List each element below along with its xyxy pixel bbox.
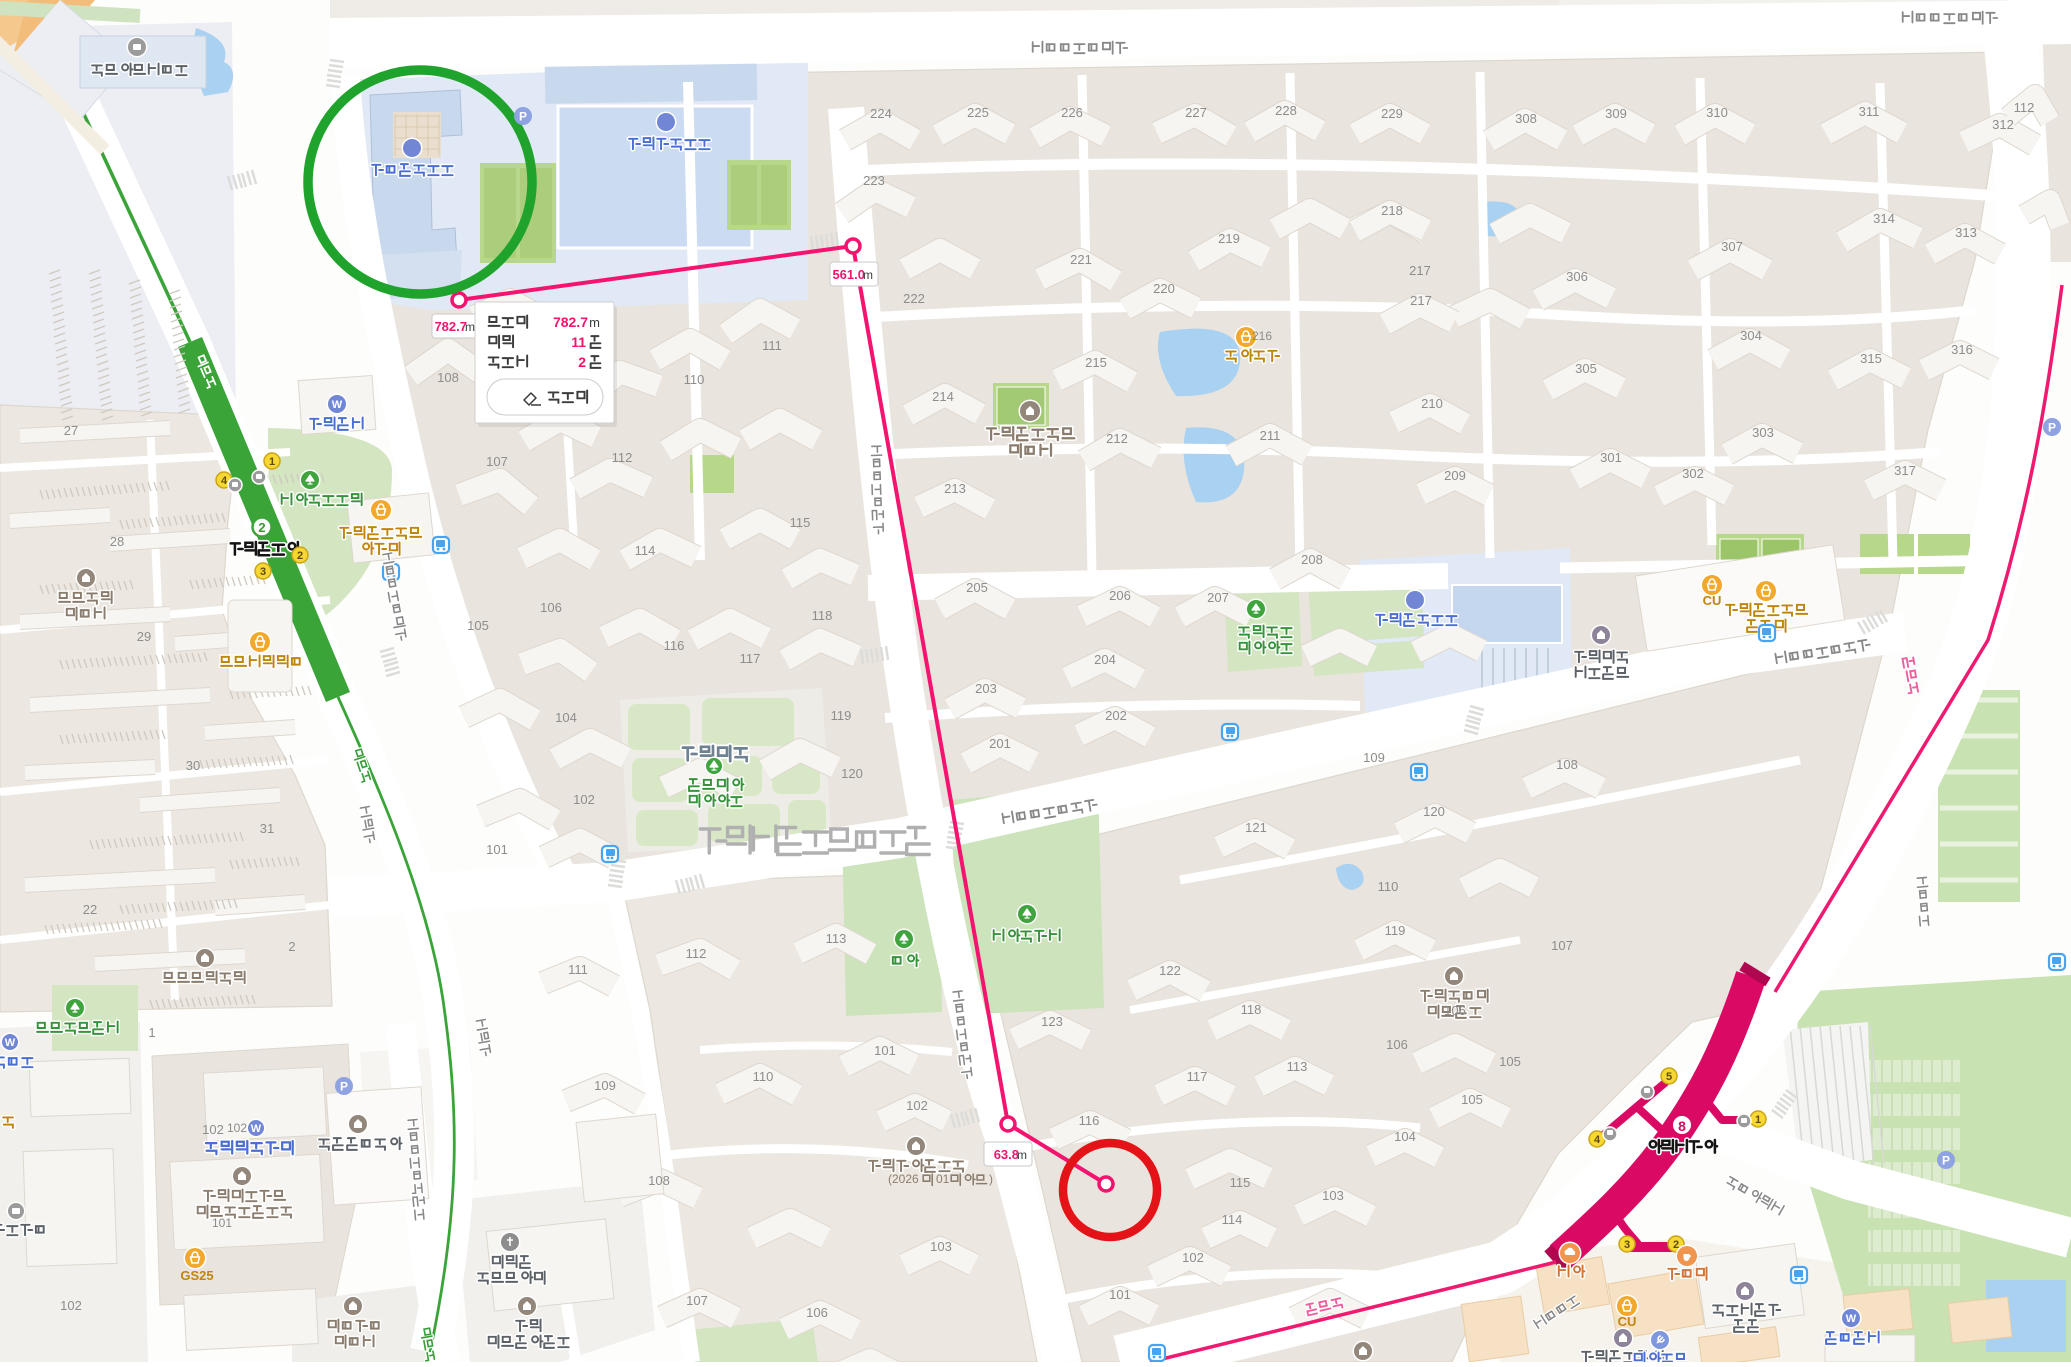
svg-text:106: 106: [1444, 1003, 1466, 1018]
svg-text:115: 115: [1230, 1175, 1251, 1190]
svg-text:): ): [989, 1172, 993, 1186]
svg-text:312: 312: [1992, 117, 2014, 132]
svg-text:27: 27: [64, 423, 78, 438]
svg-text:22: 22: [83, 902, 97, 917]
svg-text:2: 2: [288, 939, 295, 954]
svg-text:2: 2: [297, 550, 303, 562]
svg-text:303: 303: [1752, 425, 1774, 440]
svg-text:207: 207: [1207, 590, 1229, 605]
svg-text:30: 30: [186, 758, 200, 773]
svg-text:782.7: 782.7: [553, 314, 588, 330]
svg-text:m: m: [1017, 1148, 1027, 1162]
svg-text:101: 101: [1109, 1287, 1131, 1302]
svg-text:3: 3: [260, 566, 266, 578]
svg-text:(2026: (2026: [888, 1172, 919, 1186]
svg-text:314: 314: [1873, 211, 1895, 226]
svg-text:109: 109: [1363, 750, 1385, 765]
svg-text:105: 105: [467, 618, 489, 633]
svg-text:101: 101: [212, 1216, 232, 1230]
svg-text:108: 108: [1556, 757, 1578, 772]
svg-text:206: 206: [1109, 588, 1131, 603]
svg-text:111: 111: [762, 338, 782, 353]
svg-text:201: 201: [989, 736, 1011, 751]
svg-text:210: 210: [1421, 396, 1443, 411]
svg-text:223: 223: [863, 173, 885, 188]
svg-text:205: 205: [966, 580, 988, 595]
svg-text:P: P: [340, 1080, 348, 1094]
svg-text:2: 2: [258, 520, 265, 535]
svg-text:122: 122: [1159, 963, 1181, 978]
svg-text:229: 229: [1381, 106, 1403, 121]
svg-text:11: 11: [571, 334, 586, 350]
svg-text:310: 310: [1706, 105, 1728, 120]
svg-text:105: 105: [1499, 1054, 1521, 1069]
svg-text:309: 309: [1605, 106, 1627, 121]
svg-text:108: 108: [648, 1173, 670, 1188]
svg-text:311: 311: [1859, 104, 1880, 119]
svg-text:1: 1: [148, 1025, 155, 1040]
svg-text:215: 215: [1085, 355, 1107, 370]
svg-text:103: 103: [930, 1239, 952, 1254]
svg-text:313: 313: [1955, 225, 1977, 240]
svg-text:203: 203: [975, 681, 997, 696]
svg-text:216: 216: [1252, 329, 1272, 343]
svg-text:227: 227: [1185, 105, 1207, 120]
svg-text:120: 120: [1423, 804, 1445, 819]
svg-text:218: 218: [1381, 203, 1403, 218]
svg-text:104: 104: [555, 710, 577, 725]
svg-text:108: 108: [437, 370, 459, 385]
svg-text:782.7: 782.7: [434, 319, 467, 334]
svg-text:304: 304: [1740, 328, 1762, 343]
svg-text:115: 115: [790, 515, 811, 530]
svg-text:113: 113: [1287, 1059, 1308, 1074]
svg-text:W: W: [5, 1037, 16, 1049]
svg-text:m: m: [863, 268, 873, 282]
svg-text:123: 123: [1041, 1014, 1063, 1029]
svg-text:CU: CU: [1618, 1314, 1637, 1329]
svg-text:114: 114: [1222, 1212, 1243, 1227]
svg-text:63.8: 63.8: [994, 1147, 1019, 1162]
svg-text:214: 214: [932, 389, 954, 404]
svg-text:119: 119: [831, 708, 852, 723]
svg-text:209: 209: [1444, 468, 1466, 483]
svg-text:315: 315: [1860, 351, 1882, 366]
svg-text:116: 116: [1079, 1113, 1100, 1128]
svg-text:102: 102: [1182, 1250, 1204, 1265]
svg-text:m: m: [589, 315, 600, 330]
svg-text:4: 4: [221, 475, 228, 487]
svg-text:106: 106: [540, 600, 562, 615]
svg-text:4: 4: [1594, 1134, 1601, 1146]
svg-text:117: 117: [740, 651, 761, 666]
svg-text:102: 102: [60, 1298, 82, 1313]
svg-text:225: 225: [967, 105, 989, 120]
svg-text:212: 212: [1106, 431, 1128, 446]
svg-text:W: W: [332, 399, 343, 411]
svg-text:228: 228: [1275, 103, 1297, 118]
svg-text:1: 1: [269, 456, 275, 468]
svg-text:106: 106: [806, 1305, 828, 1320]
svg-text:308: 308: [1515, 111, 1537, 126]
svg-text:P: P: [1942, 1154, 1950, 1168]
svg-text:105: 105: [1461, 1092, 1483, 1107]
svg-text:P: P: [2048, 421, 2056, 435]
svg-text:111: 111: [568, 962, 588, 977]
svg-text:m: m: [465, 320, 475, 334]
svg-text:28: 28: [110, 534, 124, 549]
svg-text:01: 01: [936, 1172, 950, 1186]
svg-text:101: 101: [874, 1043, 896, 1058]
svg-text:561.0: 561.0: [832, 267, 865, 282]
svg-text:222: 222: [903, 291, 925, 306]
svg-text:114: 114: [635, 543, 656, 558]
svg-text:217: 217: [1409, 263, 1431, 278]
svg-text:107: 107: [486, 454, 508, 469]
svg-text:W: W: [251, 1123, 262, 1135]
svg-text:117: 117: [1187, 1069, 1208, 1084]
svg-text:121: 121: [1245, 820, 1267, 835]
svg-text:102: 102: [906, 1098, 928, 1113]
svg-text:3: 3: [1624, 1239, 1630, 1251]
svg-text:208: 208: [1301, 552, 1323, 567]
svg-text:8: 8: [1678, 1118, 1686, 1134]
svg-text:W: W: [1846, 1313, 1857, 1325]
svg-text:118: 118: [1241, 1002, 1262, 1017]
svg-text:110: 110: [684, 372, 705, 387]
svg-text:204: 204: [1094, 652, 1116, 667]
svg-text:112: 112: [686, 946, 707, 961]
svg-text:113: 113: [826, 931, 847, 946]
svg-text:102: 102: [202, 1122, 224, 1137]
svg-text:2: 2: [578, 354, 586, 370]
svg-text:211: 211: [1260, 428, 1281, 443]
svg-text:306: 306: [1566, 269, 1588, 284]
svg-text:103: 103: [1322, 1188, 1344, 1203]
svg-text:302: 302: [1682, 466, 1704, 481]
svg-text:221: 221: [1070, 252, 1092, 267]
svg-text:202: 202: [1105, 708, 1127, 723]
svg-text:116: 116: [664, 638, 685, 653]
svg-text:118: 118: [812, 608, 833, 623]
svg-text:GS25: GS25: [180, 1268, 213, 1283]
svg-text:P: P: [519, 110, 527, 124]
svg-text:5: 5: [1666, 1071, 1672, 1083]
svg-text:301: 301: [1600, 450, 1622, 465]
svg-text:110: 110: [753, 1069, 774, 1084]
svg-text:101: 101: [486, 842, 508, 857]
svg-text:31: 31: [260, 821, 274, 836]
svg-text:104: 104: [1394, 1129, 1416, 1144]
svg-text:102: 102: [227, 1121, 247, 1135]
svg-text:120: 120: [841, 766, 863, 781]
svg-text:307: 307: [1721, 239, 1743, 254]
svg-text:305: 305: [1575, 361, 1597, 376]
svg-text:1: 1: [1755, 1114, 1761, 1126]
svg-text:107: 107: [1551, 938, 1573, 953]
svg-text:213: 213: [944, 481, 966, 496]
svg-text:110: 110: [1378, 879, 1399, 894]
svg-text:226: 226: [1061, 105, 1083, 120]
svg-text:102: 102: [573, 792, 595, 807]
svg-text:109: 109: [594, 1078, 616, 1093]
svg-text:316: 316: [1951, 342, 1973, 357]
svg-text:29: 29: [137, 629, 151, 644]
svg-text:107: 107: [686, 1293, 708, 1308]
svg-text:112: 112: [2014, 100, 2035, 115]
svg-text:220: 220: [1153, 281, 1175, 296]
svg-text:217: 217: [1410, 293, 1432, 308]
svg-text:119: 119: [1385, 923, 1406, 938]
svg-text:317: 317: [1894, 463, 1916, 478]
svg-text:CU: CU: [1703, 593, 1722, 608]
svg-text:106: 106: [1386, 1037, 1408, 1052]
svg-text:112: 112: [612, 450, 633, 465]
svg-text:219: 219: [1218, 231, 1240, 246]
svg-text:224: 224: [870, 106, 892, 121]
